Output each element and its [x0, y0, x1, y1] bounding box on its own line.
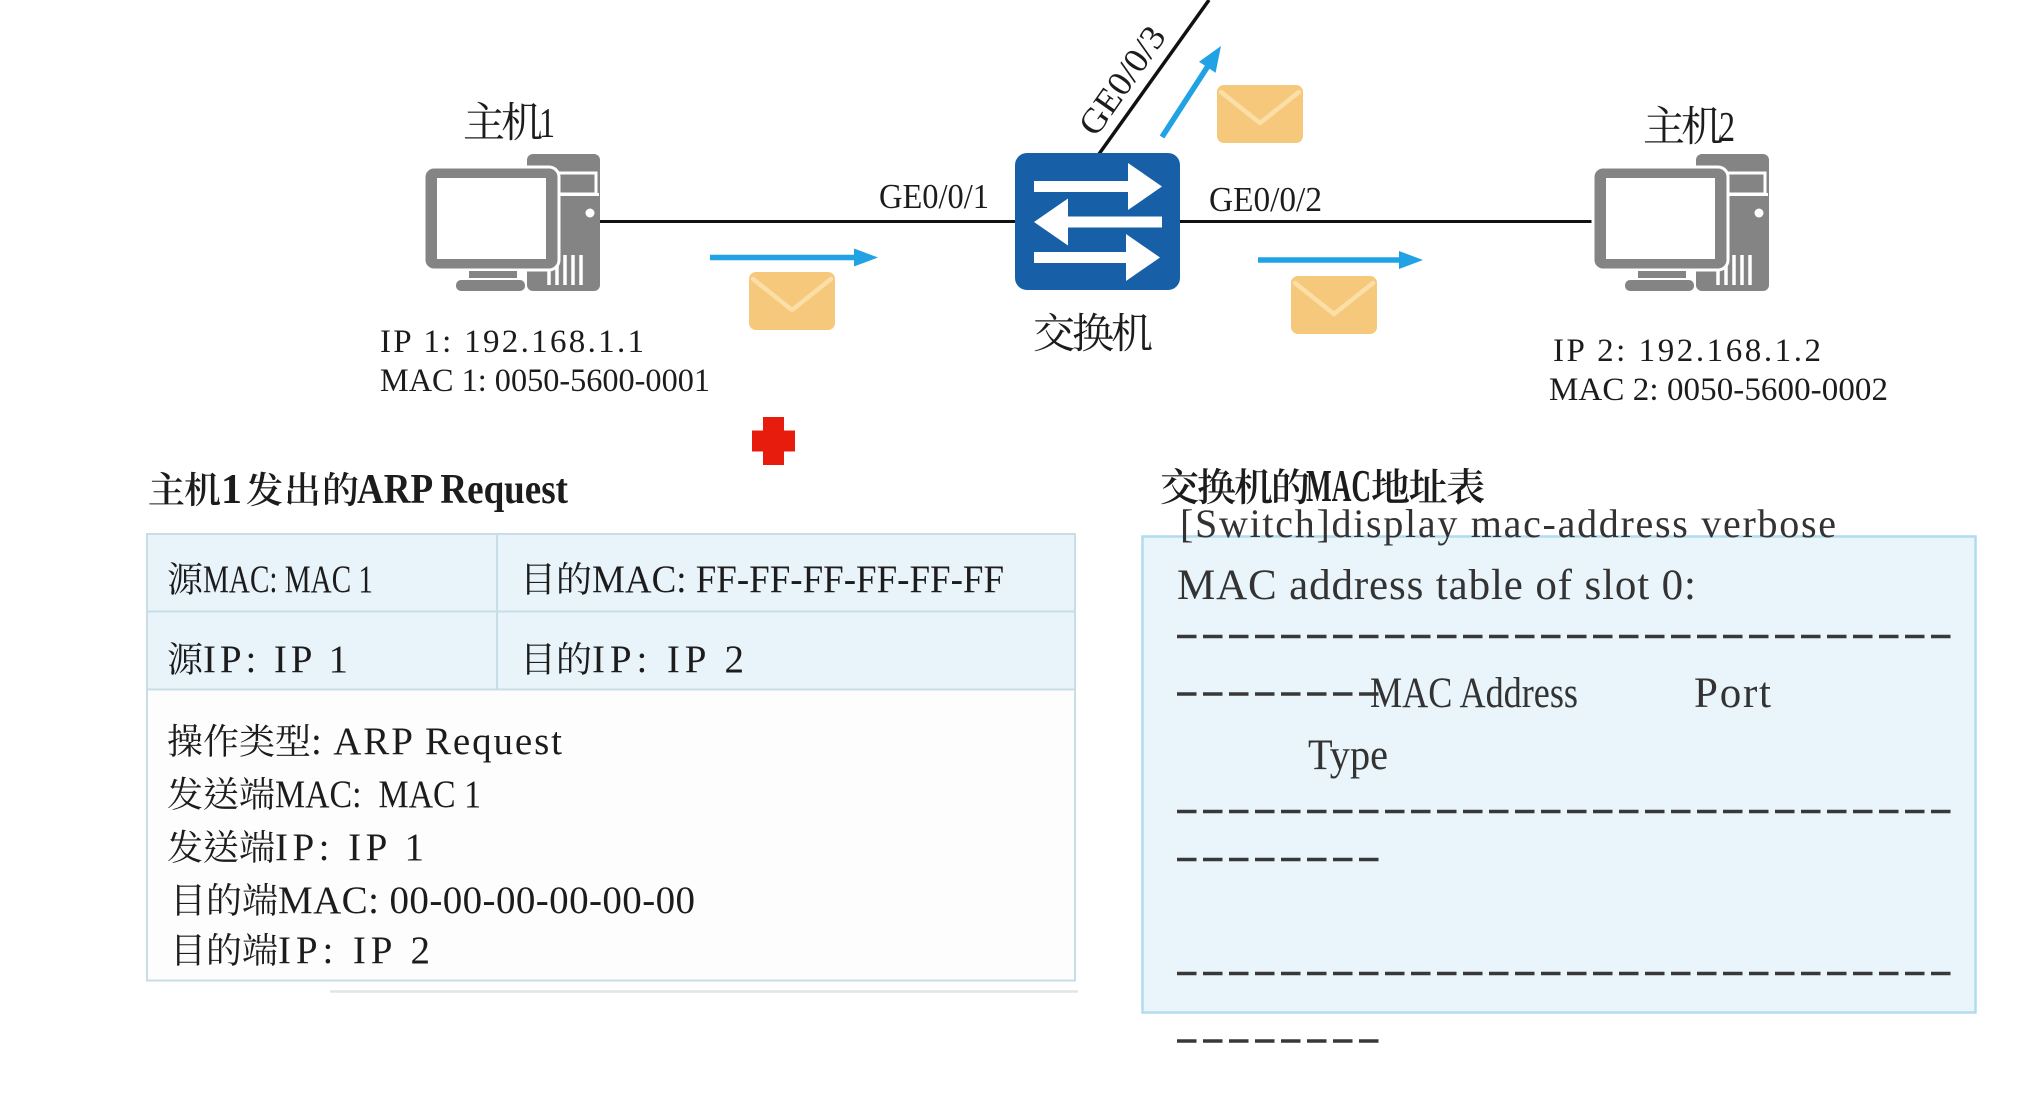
svg-text:MAC: MAC 1: MAC: MAC 1 [203, 558, 373, 601]
svg-text:IP 2: 192.168.1.2: IP 2: 192.168.1.2 [1553, 333, 1821, 369]
svg-text:GE0/0/2: GE0/0/2 [1209, 180, 1322, 219]
svg-text:MAC: FF-FF-FF-FF-FF-FF: MAC: FF-FF-FF-FF-FF-FF [592, 558, 1004, 601]
svg-text:Port: Port [1694, 670, 1771, 717]
svg-text:MAC: 00-00-00-00-00-00: MAC: 00-00-00-00-00-00 [278, 879, 695, 922]
svg-text:GE0/0/1: GE0/0/1 [879, 177, 989, 216]
svg-text:: ARP Request: : ARP Request [311, 720, 562, 763]
svg-text:MAC Address: MAC Address [1370, 670, 1578, 717]
svg-text:MAC: MAC 1: MAC: MAC 1 [275, 773, 481, 816]
svg-text:1: 1 [539, 101, 555, 147]
svg-text:MAC address table of slot 0:: MAC address table of slot 0: [1177, 562, 1696, 609]
svg-text:MAC 1: 0050-5600-0001: MAC 1: 0050-5600-0001 [380, 363, 710, 399]
svg-text:IP 1: 192.168.1.1: IP 1: 192.168.1.1 [380, 324, 644, 360]
svg-text:1: 1 [221, 467, 242, 513]
svg-text:2: 2 [1719, 105, 1735, 151]
svg-text:MAC 2: 0050-5600-0002: MAC 2: 0050-5600-0002 [1549, 372, 1888, 408]
svg-text:Type: Type [1308, 732, 1388, 779]
svg-text:ARP Request: ARP Request [357, 467, 568, 513]
svg-text:[Switch]display mac-address ve: [Switch]display mac-address verbose [1180, 501, 1836, 546]
